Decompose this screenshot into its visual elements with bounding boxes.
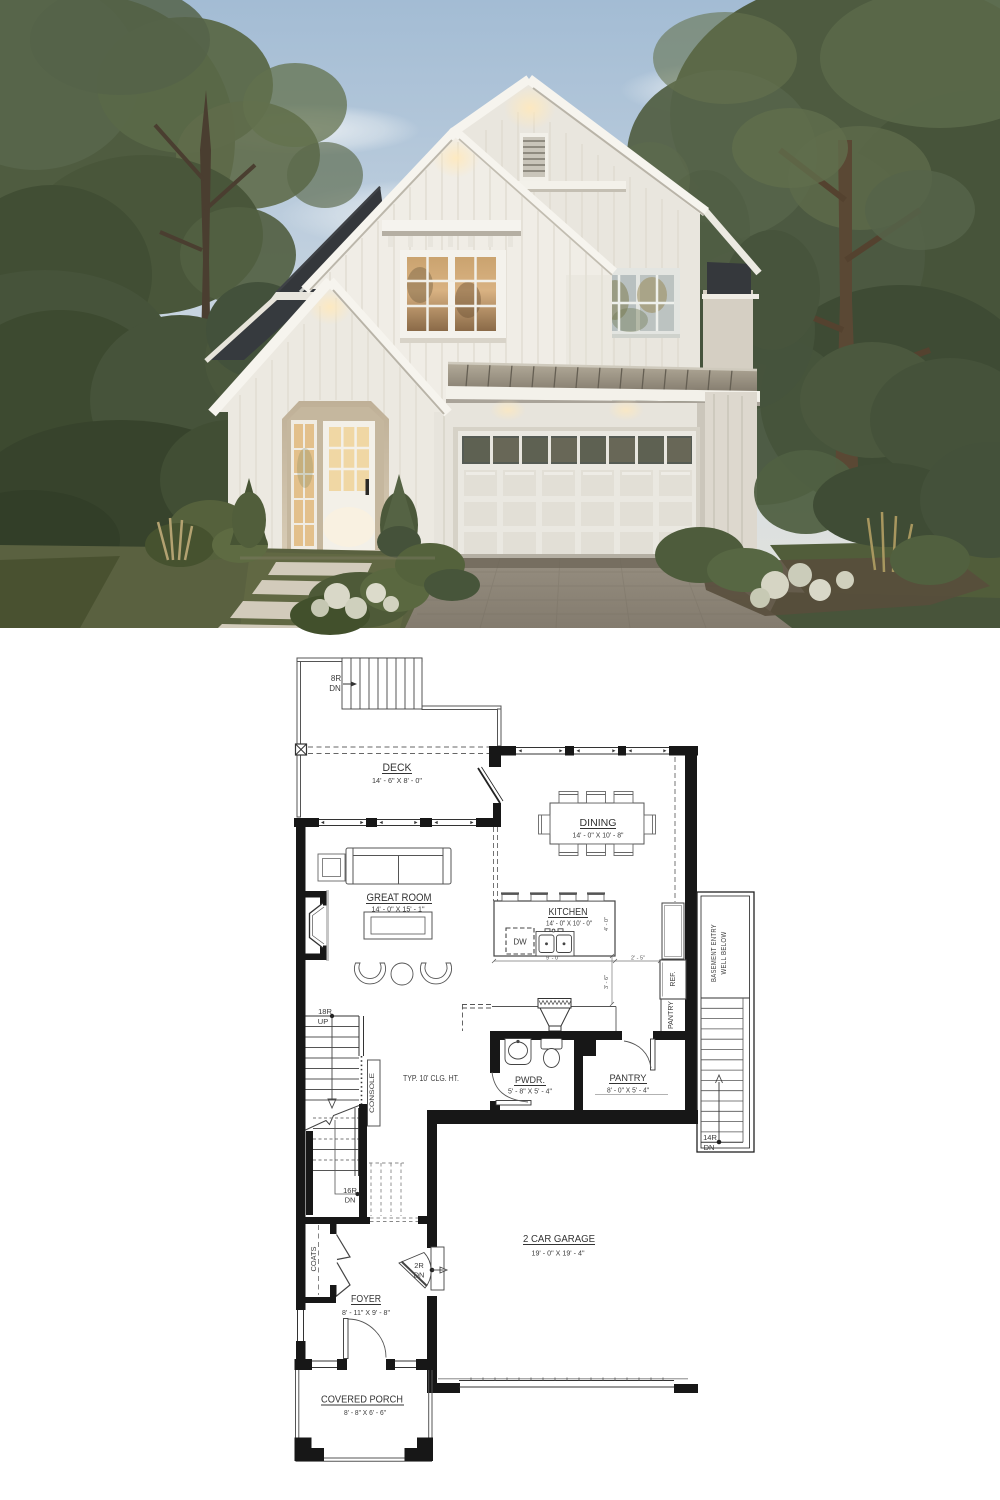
svg-text:19' - 0" X 19' - 4": 19' - 0" X 19' - 4" — [532, 1249, 585, 1258]
svg-text:14' - 6" X 8' - 0": 14' - 6" X 8' - 0" — [372, 776, 422, 785]
svg-text:DECK: DECK — [383, 762, 413, 774]
svg-text:9' - 0": 9' - 0" — [546, 956, 560, 962]
svg-text:DN: DN — [329, 684, 341, 693]
svg-text:DN: DN — [345, 1196, 356, 1205]
svg-text:TYP. 10' CLG. HT.: TYP. 10' CLG. HT. — [403, 1074, 459, 1083]
svg-text:COATS: COATS — [311, 1246, 318, 1271]
svg-text:8' - 11" X 9' - 8": 8' - 11" X 9' - 8" — [342, 1310, 391, 1317]
svg-text:WELL BELOW: WELL BELOW — [719, 931, 728, 974]
svg-text:5' - 8" X 5' - 4": 5' - 8" X 5' - 4" — [508, 1089, 553, 1096]
svg-text:BASEMENT ENTRY: BASEMENT ENTRY — [709, 924, 718, 982]
svg-text:DN: DN — [704, 1143, 715, 1152]
svg-text:14' - 0" X 10' - 0": 14' - 0" X 10' - 0" — [546, 921, 592, 928]
svg-text:DW: DW — [513, 938, 527, 947]
svg-text:PWDR.: PWDR. — [515, 1075, 545, 1086]
svg-text:8R: 8R — [331, 674, 341, 683]
svg-text:DN: DN — [414, 1271, 425, 1280]
svg-text:14' - 0" X 10' - 8": 14' - 0" X 10' - 8" — [573, 831, 624, 840]
svg-text:2' - 5": 2' - 5" — [631, 956, 645, 962]
svg-text:CONSOLE: CONSOLE — [369, 1072, 376, 1113]
svg-text:8' - 0" X 5' - 4": 8' - 0" X 5' - 4" — [607, 1088, 649, 1095]
svg-text:3' - 6": 3' - 6" — [604, 975, 610, 989]
svg-text:2 CAR GARAGE: 2 CAR GARAGE — [523, 1233, 595, 1245]
svg-text:DINING: DINING — [580, 817, 617, 829]
svg-text:14R: 14R — [703, 1133, 717, 1142]
svg-text:16R: 16R — [343, 1186, 357, 1195]
svg-text:2R: 2R — [414, 1261, 424, 1270]
svg-text:8' - 8" X 6' - 6": 8' - 8" X 6' - 6" — [344, 1410, 386, 1417]
svg-text:18R: 18R — [318, 1007, 332, 1016]
svg-text:FOYER: FOYER — [351, 1294, 381, 1305]
svg-text:REF.: REF. — [670, 971, 677, 986]
svg-text:4' - 0": 4' - 0" — [604, 917, 610, 931]
svg-text:PANTRY: PANTRY — [668, 1001, 675, 1029]
svg-text:UP: UP — [318, 1017, 328, 1026]
svg-text:KITCHEN: KITCHEN — [549, 907, 588, 918]
svg-text:PANTRY: PANTRY — [610, 1073, 648, 1084]
svg-text:COVERED PORCH: COVERED PORCH — [321, 1395, 403, 1406]
svg-text:GREAT ROOM: GREAT ROOM — [367, 892, 432, 904]
